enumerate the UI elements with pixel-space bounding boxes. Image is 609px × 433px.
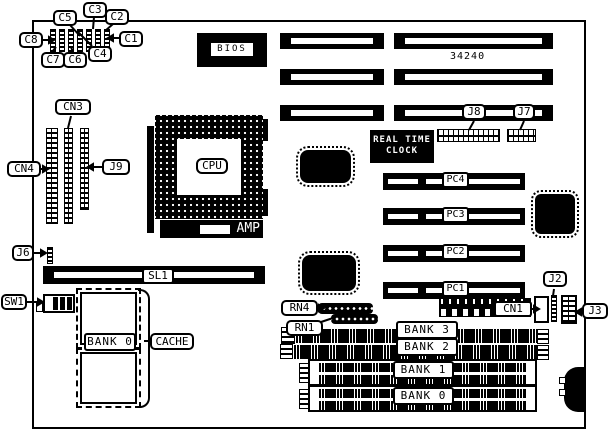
label-j7: J7 [513,104,535,120]
rn1-resistor-network [331,314,378,324]
capacitor [50,29,56,52]
pci-slot-pc2: PC2 [383,245,525,262]
slot-stripe [469,288,520,293]
rtc-label-line2: CLOCK [370,146,434,157]
label-c2: C2 [105,9,129,25]
label-pc4: PC4 [442,172,469,188]
j8-pin-header [437,129,500,142]
label-c7: C7 [41,52,65,68]
label-j2: J2 [543,271,567,287]
slot-stripe [388,251,418,256]
pci-slot-pc4: PC4 [383,173,525,190]
cpu-side-bar [147,126,154,233]
isa-slot-4 [394,69,553,85]
dip-cell-off [46,297,51,310]
label-sl1: SL1 [142,268,174,284]
label-j3: J3 [582,303,608,319]
label-bank2: BANK 2 [396,338,458,356]
bios-chip: BIOS [197,33,267,67]
slot-stripe [469,179,520,184]
cpu-socket-tab [263,119,268,141]
connector-pin [559,389,566,396]
cache-chip-2 [80,352,137,404]
label-bank1: BANK 1 [393,361,454,379]
label-j8: J8 [462,104,486,120]
capacitor [59,29,65,52]
keyboard-connector [564,367,586,412]
isa-slot-5 [280,105,384,121]
j7-pin-header [507,129,536,142]
rtc-label-line1: REAL TIME [370,135,434,146]
slot-stripe [426,214,443,219]
real-time-clock-chip: REAL TIME CLOCK [370,130,434,163]
slot-stripe [426,288,443,293]
label-rn4: RN4 [281,300,318,316]
pin-header-rail [438,135,499,137]
bios-chip-label: BIOS [211,43,253,56]
isa-slot-1 [280,33,384,49]
sw1-dip-switch [43,294,75,313]
label-sw1: SW1 [1,294,27,310]
slot-key-stripe [291,110,373,116]
slot-key-stripe [405,38,542,44]
slot-key-stripe [405,74,542,80]
slot-stripe [388,288,418,293]
slot-stripe [426,251,443,256]
sw1-tab [36,302,43,312]
simm-end-clip [537,345,549,360]
motherboard-diagram: C5 C3 C2 C8 C1 C7 C6 C4 BIOS 34240 J8 J7… [0,0,609,433]
slot-stripe [388,179,418,184]
isa-slot-2 [394,33,553,49]
isa-slot-3 [280,69,384,85]
slot-stripe [426,179,443,184]
label-j6: J6 [12,245,34,261]
label-bank3: BANK 3 [396,321,458,339]
label-c1: C1 [119,31,143,47]
dip-cell-on [53,297,58,310]
dip-cell-on [60,297,65,310]
j3-connector [561,295,577,324]
pci-slot-pc1: PC1 [383,282,525,299]
label-pc1: PC1 [442,281,469,297]
simm-end-clip [537,329,549,344]
capacitor [77,29,83,52]
pci-slot-pc3: PC3 [383,208,525,225]
amp-label: AMP [237,222,260,236]
cn3-connector [64,128,73,224]
j2-jumper [551,295,557,322]
qfp-chip [300,150,351,183]
label-rn1: RN1 [286,320,323,336]
part-number: 34240 [450,51,485,63]
slot-stripe [388,214,418,219]
label-cache: CACHE [150,333,194,350]
label-cpu: CPU [196,158,228,174]
slot-key-stripe [291,74,373,80]
pin-header-rail [508,135,535,137]
label-pc2: PC2 [442,244,469,260]
simm-end-clip [280,344,293,359]
label-c4: C4 [88,46,112,62]
slot-stripe [469,251,520,256]
capacitor [68,29,74,52]
j6-jumper [47,247,53,264]
slot-stripe [469,214,520,219]
label-j9: J9 [102,159,130,175]
cpu-socket-tab [263,189,268,216]
label-cn4: CN4 [7,161,41,177]
label-bank0: BANK 0 [393,387,454,405]
j9-connector [80,128,89,210]
label-cn3: CN3 [55,99,91,115]
amp-connector: AMP [160,220,263,238]
cn4-connector [46,128,58,224]
label-cache-bank0: BANK 0 [84,333,136,351]
label-pc3: PC3 [442,207,469,223]
connector-pin [559,377,566,384]
label-c6: C6 [63,52,87,68]
label-c3: C3 [83,2,107,18]
dip-cell-on [67,297,72,310]
label-cn1: CN1 [494,301,532,317]
rn4-resistor-network [318,303,373,314]
label-c8: C8 [19,32,43,48]
cache-brace [138,289,150,408]
qfp-chip [302,255,356,291]
label-c5: C5 [53,10,77,26]
qfp-chip [535,194,575,234]
slot-key-stripe [291,38,373,44]
cn1-side-component [534,296,549,323]
amp-key [200,225,230,234]
